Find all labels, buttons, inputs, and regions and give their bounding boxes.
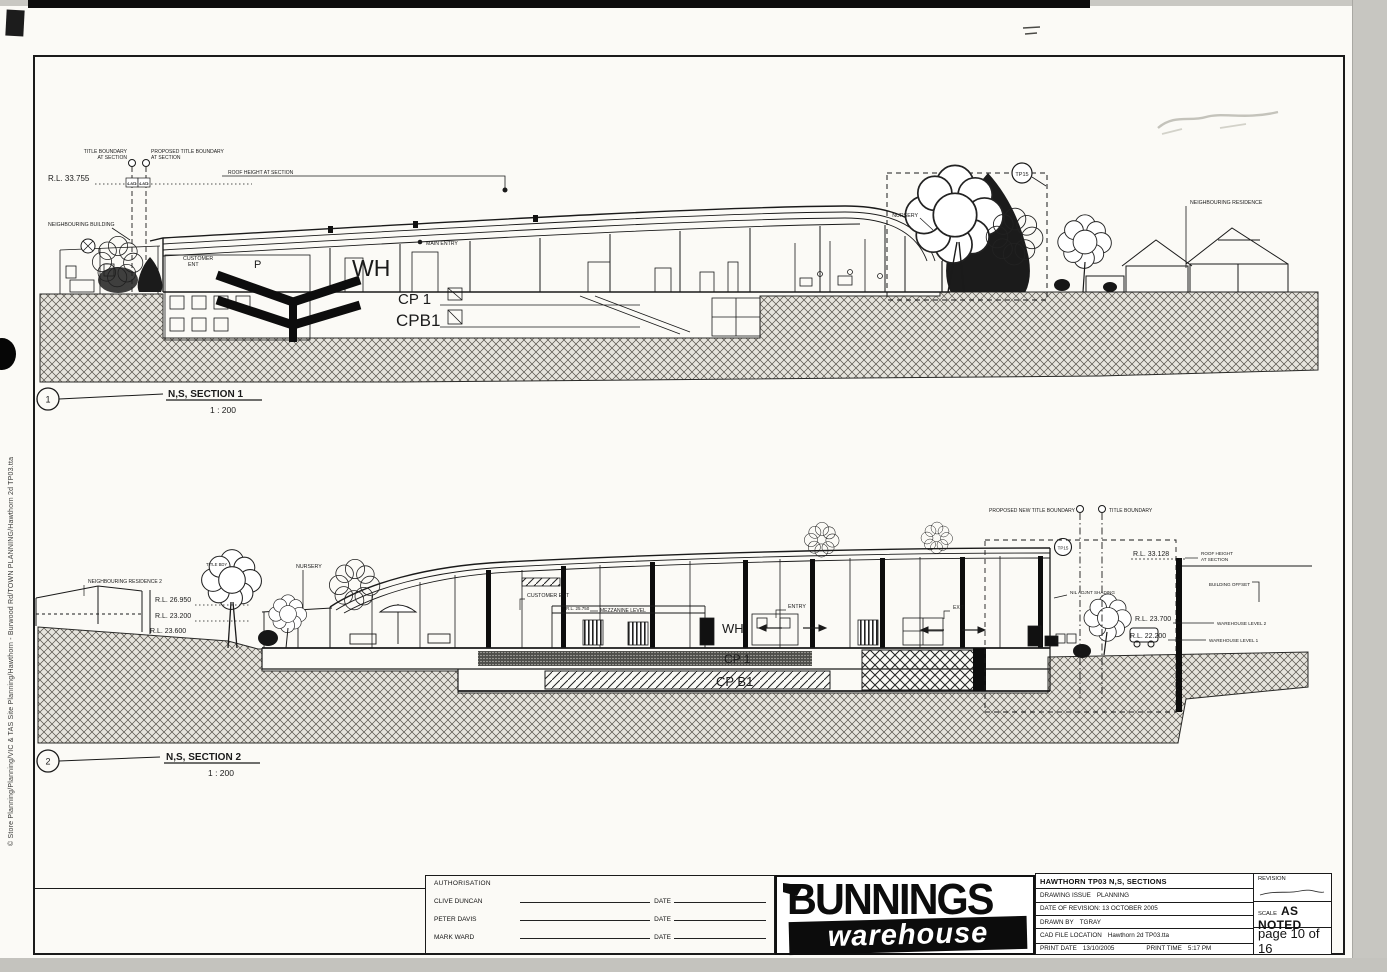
section2-marker: 2 N,S, SECTION 2 1 : 200 <box>37 750 260 778</box>
title-boundary-label: TITLE BOUNDARY <box>1109 508 1153 514</box>
warehouse-section2 <box>262 548 1076 691</box>
rl-23200-label: R.L. 23.200 <box>155 613 191 620</box>
warehouse-wordmark: warehouse <box>827 919 988 952</box>
drawing-issue-row: DRAWING ISSUEPLANNING <box>1036 889 1253 902</box>
warehouse-bar: warehouse <box>789 916 1028 955</box>
pencil-mark-top <box>1020 24 1044 38</box>
scan-artifact-top-strip <box>28 0 1090 8</box>
section2-scale: 1 : 200 <box>208 768 234 778</box>
signatory-name: PETER DAVIS <box>434 916 520 923</box>
roof-height-label: ROOF HEIGHT <box>1201 551 1233 556</box>
tree-marker-label: TP15 <box>1015 172 1028 178</box>
svg-text:AT SECTION: AT SECTION <box>97 155 127 161</box>
scale-cell: SCALEAS NOTED <box>1254 902 1331 928</box>
svg-text:AT SECTION: AT SECTION <box>151 155 181 161</box>
drawing-title-row: HAWTHORN TP03 N,S, SECTIONS <box>1036 874 1253 889</box>
signatory-name: CLIVE DUNCAN <box>434 898 520 905</box>
date-label: DATE <box>654 898 674 905</box>
trees-right-s1: TP15 <box>887 163 1117 300</box>
rl-22200-label: R.L. 22.200 <box>1130 633 1166 640</box>
section2-title: N,S, SECTION 2 <box>166 752 241 763</box>
signature-row: CLIVE DUNCAN DATE <box>434 887 766 905</box>
main-entry-label: MAIN ENTRY <box>426 241 458 247</box>
authorisation-block: AUTHORISATION CLIVE DUNCAN DATE PETER DA… <box>425 875 775 955</box>
wh-label: WH <box>722 621 744 636</box>
entry-label: ENTRY <box>788 604 806 610</box>
cpb1-label: CPB1 <box>396 311 440 330</box>
p-label: P <box>254 259 261 271</box>
cp1-label: CP 1 <box>724 652 751 666</box>
cad-file-row: CAD FILE LOCATIONHawthorn 2d TP03.tta <box>1036 929 1253 943</box>
date-line <box>674 902 766 903</box>
signature-line <box>520 938 650 939</box>
svg-text:1: 1 <box>45 395 50 405</box>
page-number-cell: page 10 of 16 <box>1254 928 1331 954</box>
info-rows: HAWTHORN TP03 N,S, SECTIONS DRAWING ISSU… <box>1036 874 1254 954</box>
rl-33755-label: R.L. 33.755 <box>48 174 90 183</box>
signature-line <box>520 902 650 903</box>
date-label: DATE <box>654 916 674 923</box>
scan-artifact-corner-mark <box>5 10 24 37</box>
rl-33128-label: R.L. 33.128 <box>1133 551 1169 558</box>
nursery-label: NURSERY <box>296 564 322 570</box>
svg-text:AT SECTION: AT SECTION <box>1201 557 1228 562</box>
exit-label: EXIT <box>953 605 964 611</box>
cad-path-side-text: © Store Planning/Planning/VIC & TAS Site… <box>8 516 15 846</box>
section1-title: N,S, SECTION 1 <box>168 389 243 400</box>
scanned-drawing-sheet: { "sheet": { "side_text": "© Store Plann… <box>0 0 1387 972</box>
rl-23600-label: R.L. 23.600 <box>150 628 186 635</box>
scan-artifact-right-band <box>1352 0 1387 972</box>
date-label: DATE <box>654 934 674 941</box>
roof-height-label: ROOF HEIGHT AT SECTION <box>228 170 294 176</box>
revision-cell: REVISION <box>1254 874 1331 902</box>
cp1-label: CP 1 <box>398 291 431 308</box>
nursery-label: NURSERY <box>892 213 918 219</box>
roof-callout-s1: ROOF HEIGHT AT SECTION <box>222 170 508 193</box>
section1-marker: 1 N,S, SECTION 1 1 : 200 <box>37 388 262 415</box>
rl-23700-label: R.L. 23.700 <box>1135 616 1171 623</box>
trees-s2 <box>202 522 1158 658</box>
section1-drawing: TP15 TITLE BOUNDARY AT SECTION PROPOSED … <box>33 90 1333 430</box>
title-block-empty-cell <box>33 888 425 954</box>
dim-box: LAD <box>128 181 138 186</box>
svg-text:ENT: ENT <box>188 262 199 268</box>
section1-scale: 1 : 200 <box>210 405 236 415</box>
warehouse-level2-label: WAREHOUSE LEVEL 2 <box>1217 621 1267 626</box>
revision-date-row: DATE OF REVISION: 13 OCTOBER 2005 <box>1036 903 1253 916</box>
print-row: PRINT DATE13/10/2005PRINT TIME5:17 PM <box>1036 944 1253 954</box>
svg-text:2: 2 <box>45 757 50 767</box>
nursery-court-s2 <box>350 604 450 644</box>
neighbouring-houses-s1 <box>1086 228 1288 292</box>
scan-artifact-bottom-band <box>0 958 1387 972</box>
dim-box: LAD <box>140 181 150 186</box>
tree-marker-label: TP15 <box>1058 546 1069 551</box>
rl-mezzanine-label: R.L. 25.750 <box>566 606 590 611</box>
drawn-by-row: DRAWN BYTGRAY <box>1036 916 1253 929</box>
signatory-name: MARK WARD <box>434 934 520 941</box>
neighbouring-residence-label: NEIGHBOURING RESIDENCE <box>1190 200 1263 206</box>
building-offset-label: BUILDING OFFSET <box>1209 582 1250 587</box>
proposed-new-boundary-label: PROPOSED NEW TITLE BOUNDARY <box>989 508 1076 514</box>
signature-row: PETER DAVIS DATE <box>434 905 766 923</box>
neighbouring-residence2-label: NEIGHBOURING RESIDENCE 2 <box>88 579 162 585</box>
neighbouring-building-label: NEIGHBOURING BUILDING <box>48 222 115 228</box>
cpb1-label: CP B1 <box>716 674 753 689</box>
title-block-info: HAWTHORN TP03 N,S, SECTIONS DRAWING ISSU… <box>1035 873 1332 955</box>
wh-label: WH <box>352 255 390 281</box>
mezzanine-label: MEZZANINE LEVEL <box>600 608 646 614</box>
title-bdy-tree-label: TITLE BDY <box>206 562 227 567</box>
signature-line <box>520 920 650 921</box>
customer-entry-label: CUSTOMER ENT <box>527 593 570 599</box>
carpark-ramps-s1 <box>217 275 360 342</box>
rl-26950-label: R.L. 26.950 <box>155 597 191 604</box>
warehouse-level1-label: WAREHOUSE LEVEL 1 <box>1209 638 1259 643</box>
shading-label: NIL ADJNT SHADING <box>1070 590 1115 595</box>
signature-row: MARK WARD DATE <box>434 923 766 941</box>
pencil-scribble <box>1150 100 1290 145</box>
authorisation-header: AUTHORISATION <box>434 880 766 887</box>
bunnings-logo: BUNNINGS warehouse <box>775 875 1035 955</box>
date-line <box>674 938 766 939</box>
section2-drawing: NEIGHBOURING RESIDENCE 2 R.L. 26.950 R.L… <box>33 480 1333 795</box>
date-line <box>674 920 766 921</box>
info-right-column: REVISION SCALEAS NOTED page 10 of 16 <box>1254 874 1331 954</box>
